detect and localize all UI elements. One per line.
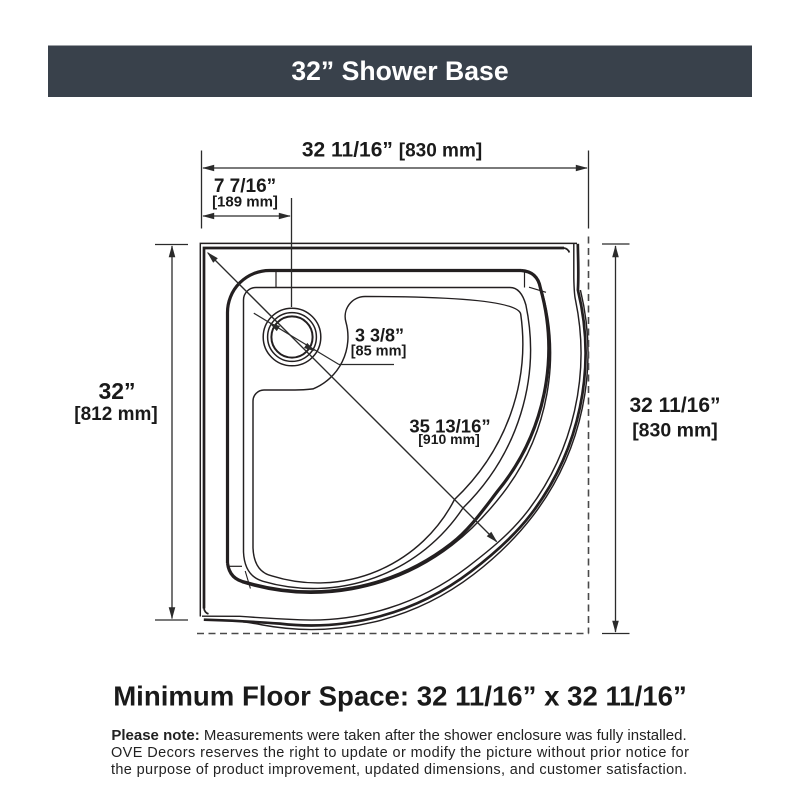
svg-text:OVE Decors reserves the right: OVE Decors reserves the right to update … xyxy=(111,745,689,761)
svg-text:32 11/16”: 32 11/16” xyxy=(629,394,720,417)
svg-text:32”: 32” xyxy=(98,378,135,404)
svg-text:Please note: Measurements were: Please note: Measurements were taken aft… xyxy=(111,727,686,744)
svg-text:Minimum Floor Space: 32 11/16”: Minimum Floor Space: 32 11/16” x 32 11/1… xyxy=(113,681,687,712)
svg-text:[189 mm]: [189 mm] xyxy=(212,194,278,211)
svg-text:32 11/16” [830 mm]: 32 11/16” [830 mm] xyxy=(302,139,482,162)
svg-text:the purpose of product improve: the purpose of product improvement, upda… xyxy=(111,762,687,778)
svg-text:[85 mm]: [85 mm] xyxy=(351,344,407,360)
svg-text:3 3/8”: 3 3/8” xyxy=(355,326,404,346)
svg-text:[830 mm]: [830 mm] xyxy=(632,420,718,442)
svg-text:32” Shower Base: 32” Shower Base xyxy=(291,56,508,86)
svg-text:[812 mm]: [812 mm] xyxy=(74,404,157,425)
svg-text:[910 mm]: [910 mm] xyxy=(418,431,479,447)
